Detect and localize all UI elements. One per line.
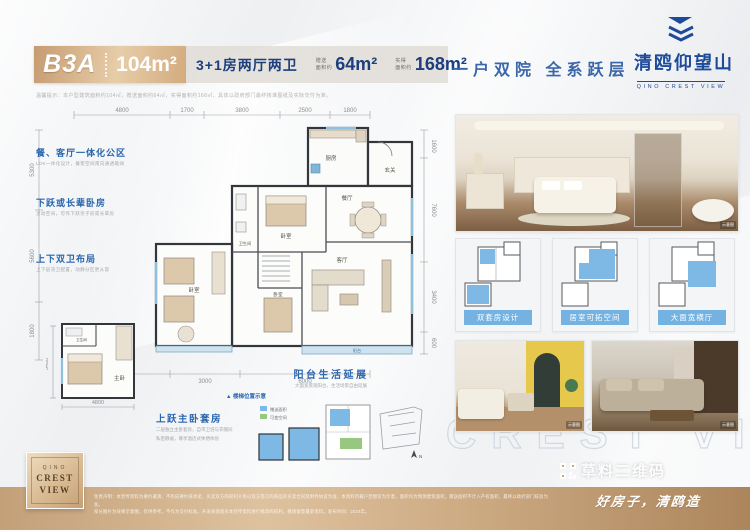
card-caption: 大面宽横厅 [658,310,726,325]
rug [518,211,630,226]
cushion [606,379,632,391]
svg-text:厨房: 厨房 [325,154,337,162]
compass-icon: N [411,450,422,459]
desk [508,393,534,411]
bedroom-photo: 示意图 [455,114,739,232]
svg-text:1700: 1700 [180,108,194,114]
svg-text:卫生间: 卫生间 [76,337,87,342]
bathtub [692,199,734,222]
gift-label-top: 赠送 [316,58,333,65]
coffee-table [650,410,694,421]
svg-text:卧室: 卧室 [280,232,292,240]
real-label-bottom: 面积约 [395,65,412,72]
unit-code: B3A [43,50,96,79]
legend-flex-swatch [260,414,267,419]
svg-text:1800: 1800 [30,324,36,338]
svg-text:1600: 1600 [430,139,436,153]
svg-text:N: N [419,454,422,459]
legend-gift-swatch [260,406,267,411]
dotted-divider [105,53,107,77]
feature-card-wide-hall: 大面宽横厅 [649,238,735,332]
header-strip: 3+1房两厅两卫 赠送 面积约 64m² 实得 面积约 168m² [186,46,448,83]
card-caption: 居室可拓空间 [561,310,629,325]
cushion [638,379,664,391]
qr-icon [560,463,576,479]
svg-text:赠送面积: 赠送面积 [270,406,287,413]
unit-title-box: B3A 104m² [34,46,186,83]
svg-text:5400: 5400 [46,358,50,370]
dresser [466,173,504,209]
brand-name: 清鸥仰望山 [634,49,728,75]
svg-text:7600: 7600 [430,203,436,217]
svg-text:4800: 4800 [92,400,104,406]
pillow [542,181,560,190]
svg-text:客厅: 客厅 [336,256,348,264]
header-fineprint: 温馨提示：本户型建筑面积约104㎡，赠送面积约64㎡，实得面积约168㎡，具体以… [36,92,466,99]
brand-logo: 清鸥仰望山 QINO CREST VIEW [634,13,728,93]
poster-sheet: B3A 104m² 3+1房两厅两卫 赠送 面积约 64m² 实得 面积约 16… [0,0,750,530]
layout-text: 3+1房两厅两卫 [196,55,298,75]
gift-label-bottom: 面积约 [316,65,333,72]
flex-plan [326,405,370,459]
gift-block-b [289,428,319,460]
stairs-note: ▲ 楼梯位置示意 [226,392,266,400]
disclaimer-line-2: 部分图片为效果示意图，仅供参考，不作为交付标准。开发商保留对本宣传资料进行修改的… [94,508,556,516]
mini-plan-expandable [553,239,637,311]
badge-view: VIEW [39,485,70,496]
kids-room-photo: 示意图 [455,340,585,432]
svg-text:餐厅: 餐厅 [341,194,353,202]
brand-badge: QINO CREST VIEW [26,452,84,509]
photo-tag: 示意图 [566,421,582,429]
gift-block-a [259,434,283,460]
glass-partition [634,133,682,227]
footer-slogan: 好房子，清鸥造 [595,491,702,510]
svg-text:4800: 4800 [115,108,129,114]
balcony-note: 阳台生活延展 大面宽景观阳台，生活场景自由延展 [266,366,396,389]
card-caption: 双套房设计 [464,310,532,325]
badge-crest: CREST [36,473,74,484]
feature-card-expandable: 居室可拓空间 [552,238,638,332]
svg-text:3800: 3800 [235,108,249,114]
mini-plan-wide-hall [650,239,734,311]
site-plan [380,407,422,449]
gift-area: 赠送 面积约 64m² [316,54,378,75]
mini-schematics: 赠送面积 可变空间 N [256,402,424,470]
brand-name-en: QINO CREST VIEW [637,81,726,90]
annotation-public-zone: 餐、客厅一体化公区 LDK一体化设计，餐客空间南向通透敞阔 [36,146,196,167]
qr-watermark: 草料二维码 [560,460,666,481]
photo-tag: 示意图 [720,421,736,429]
svg-text:1800: 1800 [343,108,357,114]
brand-mark-icon [662,13,700,45]
feature-card-double-suite: 双套房设计 [455,238,541,332]
badge-qino: QINO [43,465,68,471]
svg-text:卧室: 卧室 [273,291,283,298]
svg-text:2500: 2500 [298,108,312,114]
svg-text:3400: 3400 [430,290,436,304]
annotation-lower-bedroom: 下跃或长辈卧房 灵动空间，可作下跃亲子房或长辈房 [36,196,196,217]
wall-decor [565,379,578,392]
master-suite-plan: 5400 4800 卫生间 主卧 [46,314,146,414]
legal-disclaimer: 免责声明：本宣传资料为要约邀请，不构成要约或承诺，买卖双方的权利义务以双方签订的… [94,493,556,516]
qr-label: 草料二维码 [581,460,666,481]
svg-text:卫生间: 卫生间 [239,240,252,247]
kids-bed [458,389,504,419]
gift-value: 64m² [335,54,377,75]
svg-text:玄关: 玄关 [384,166,396,174]
svg-text:3000: 3000 [198,379,212,385]
svg-text:主卧: 主卧 [114,374,126,382]
annotation-double-bath: 上下双卫布局 上下层双卫配置，动静分区更从容 [36,252,196,273]
campaign-slogan: 一户双院 全系跃层 [452,56,629,80]
living-room-photo: 示意图 [591,340,739,432]
mini-plan-double-suite [456,239,540,311]
svg-text:阳台: 阳台 [353,347,361,354]
svg-text:卧室: 卧室 [188,286,200,294]
svg-text:可变空间: 可变空间 [270,414,287,421]
ceiling-cove [474,121,724,130]
photo-tag: 示意图 [720,221,736,229]
lamp [474,153,483,175]
pillow [564,181,582,190]
real-label-top: 实得 [395,58,412,65]
disclaimer-line-1: 免责声明：本宣传资料为要约邀请，不构成要约或承诺，买卖双方的权利义务以双方签订的… [94,493,556,508]
svg-text:600: 600 [430,338,436,349]
unit-area: 104m² [116,53,177,77]
